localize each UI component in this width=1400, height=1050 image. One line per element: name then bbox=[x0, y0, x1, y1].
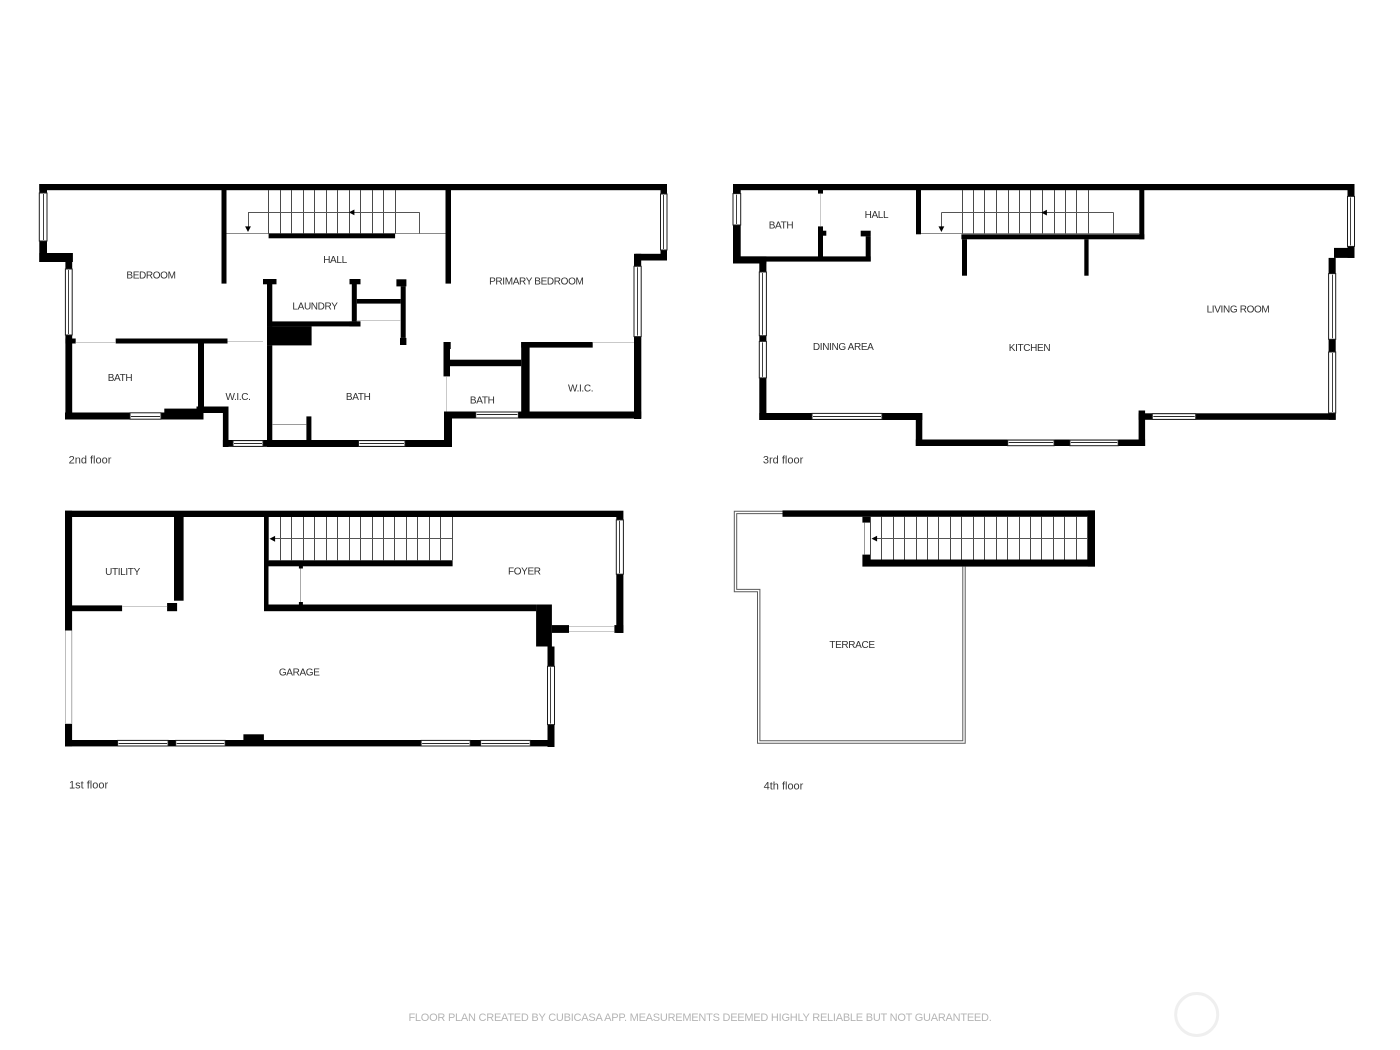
svg-text:KITCHEN: KITCHEN bbox=[1009, 343, 1051, 354]
svg-text:BATH: BATH bbox=[769, 221, 794, 232]
svg-text:BATH: BATH bbox=[346, 392, 371, 403]
svg-text:2nd floor: 2nd floor bbox=[69, 455, 112, 467]
svg-text:BATH: BATH bbox=[108, 373, 133, 384]
svg-text:LAUNDRY: LAUNDRY bbox=[292, 302, 338, 313]
svg-text:W.I.C.: W.I.C. bbox=[225, 392, 250, 403]
svg-text:UTILITY: UTILITY bbox=[105, 567, 140, 578]
svg-text:1st floor: 1st floor bbox=[69, 780, 108, 792]
svg-text:DINING AREA: DINING AREA bbox=[813, 342, 874, 353]
svg-text:FOYER: FOYER bbox=[508, 567, 541, 578]
svg-text:W.I.C.: W.I.C. bbox=[568, 383, 593, 394]
svg-text:FLOOR PLAN CREATED BY CUBICASA: FLOOR PLAN CREATED BY CUBICASA APP. MEAS… bbox=[408, 1012, 991, 1024]
svg-text:TERRACE: TERRACE bbox=[829, 640, 875, 651]
svg-text:BATH: BATH bbox=[470, 395, 495, 406]
svg-text:PRIMARY BEDROOM: PRIMARY BEDROOM bbox=[489, 276, 583, 287]
svg-text:HALL: HALL bbox=[323, 255, 347, 266]
svg-text:LIVING ROOM: LIVING ROOM bbox=[1207, 305, 1270, 316]
svg-text:BEDROOM: BEDROOM bbox=[126, 271, 175, 282]
svg-text:3rd floor: 3rd floor bbox=[763, 455, 804, 467]
svg-text:GARAGE: GARAGE bbox=[279, 668, 320, 679]
svg-text:HALL: HALL bbox=[865, 210, 889, 221]
svg-text:4th floor: 4th floor bbox=[764, 781, 804, 793]
